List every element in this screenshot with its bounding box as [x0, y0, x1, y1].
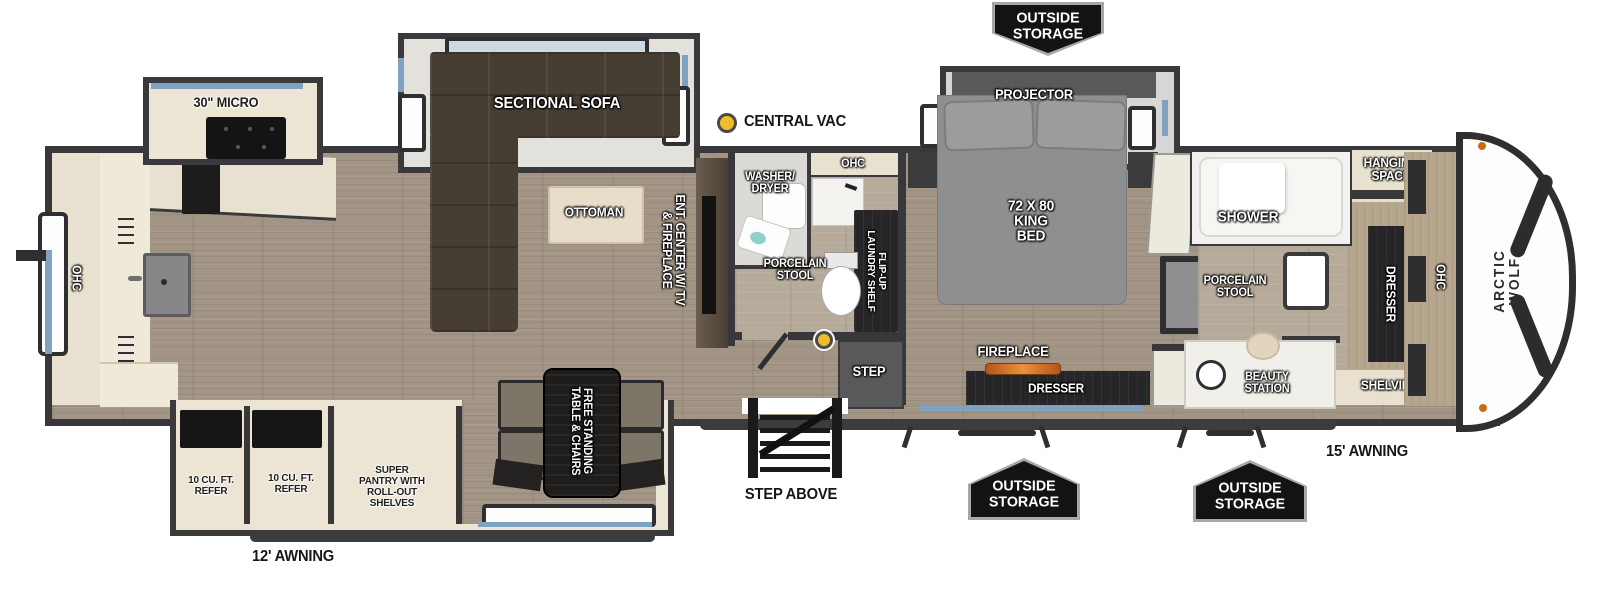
nightstand-left — [908, 152, 938, 188]
fireplace-flame — [985, 363, 1061, 375]
pantry-label: SUPER PANTRY WITH ROLL-OUT SHELVES — [359, 465, 425, 509]
front-dresser-label: DRESSER — [1384, 266, 1397, 322]
ent-center-label: ENT. CENTER W/ TV & FIREPLACE — [660, 195, 686, 306]
laundry-shelf-label: FLIP-UP LAUNDRY SHELF — [865, 230, 887, 311]
bottom-wall-window-band — [920, 406, 1142, 411]
awning-rear-bar — [250, 532, 655, 542]
marker-light-top — [1478, 142, 1486, 150]
entry-steps-left-rail — [748, 398, 758, 478]
rear-wall-window-band — [45, 250, 52, 354]
washer-dryer-label: WASHER/ DRYER — [745, 172, 795, 196]
beauty-sink — [1196, 360, 1226, 390]
refer-2-label: 10 CU. FT. REFER — [268, 473, 314, 495]
step-above-label: STEP ABOVE — [745, 487, 837, 503]
shower-label: SHOWER — [1218, 210, 1279, 225]
rear-window — [38, 212, 68, 356]
central-vac-label: CENTRAL VAC — [744, 114, 846, 130]
chair-top-left — [498, 380, 548, 430]
beauty-station-label: BEAUTY STATION — [1244, 372, 1289, 396]
marker-light-bottom — [1479, 404, 1487, 412]
bedroom-dresser-label: DRESSER — [1028, 383, 1084, 396]
awning-arm-1 — [958, 430, 1036, 436]
mid-bath-ohc-label: OHC — [841, 159, 865, 171]
micro-label: 30" MICRO — [194, 96, 259, 110]
mid-toilet-bowl — [821, 266, 861, 316]
kitchen-sink — [143, 253, 191, 317]
slide-divider-1 — [244, 406, 250, 524]
drawer-pulls-upper — [118, 218, 134, 244]
front-ohc-shelf-1 — [1408, 160, 1426, 214]
bath-left-wall — [728, 150, 735, 346]
cooktop — [206, 117, 286, 159]
pillow-left — [943, 98, 1035, 151]
sofa-slide-right-band — [682, 55, 688, 89]
tv — [702, 196, 716, 314]
sofa-slide-left-band — [398, 58, 404, 92]
refer-2-top — [252, 410, 322, 448]
rear-bumper-tick — [16, 250, 46, 261]
projector-label: PROJECTOR — [995, 88, 1073, 102]
outside-storage-badge-door: OUTSIDE STORAGE — [968, 458, 1080, 520]
sofa-label: SECTIONAL SOFA — [494, 96, 620, 112]
kitchen-sink-drain — [161, 279, 167, 285]
refer-1-top — [180, 410, 242, 448]
front-ohc-shelf-2 — [1408, 256, 1426, 302]
rear-bottom-counter — [100, 362, 178, 407]
beauty-stool — [1246, 332, 1280, 360]
step-label: STEP — [853, 365, 886, 379]
partition-upper — [1149, 155, 1196, 253]
outside-storage-top-label: OUTSIDE STORAGE — [1013, 10, 1083, 42]
sofa-slide-left-window — [398, 94, 426, 152]
sectional-sofa-chaise — [430, 136, 518, 332]
front-ohc-label: OHC — [1434, 264, 1447, 290]
awning-main-label: 15' AWNING — [1326, 444, 1408, 460]
kitchen-faucet — [128, 276, 142, 281]
front-toilet-label: PORCELAIN STOOL — [1204, 276, 1267, 300]
slide-divider-3 — [456, 406, 462, 524]
front-toilet — [1283, 252, 1329, 310]
outside-storage-badge-top: OUTSIDE STORAGE — [992, 2, 1104, 56]
drawer-pulls-lower — [118, 336, 134, 362]
awning-arm-2 — [1206, 430, 1254, 436]
pillow-right — [1035, 98, 1127, 151]
ottoman-label: OTTOMAN — [565, 207, 623, 220]
fireplace-label: FIREPLACE — [978, 345, 1049, 359]
dinette-window-band — [478, 522, 652, 527]
mid-toilet-label: PORCELAIN STOOL — [764, 259, 827, 283]
rear-ohc-label: OHC — [70, 265, 83, 291]
chair-top-right — [618, 380, 664, 430]
king-bed-label: 72 X 80 KING BED — [1008, 199, 1054, 244]
micro-slide-window-band — [151, 83, 303, 89]
range-oven — [182, 158, 220, 214]
floorplan-canvas: OHC 30" MICRO SECTIONAL SOFA OTTOMAN ENT… — [0, 0, 1600, 592]
slide-divider-2 — [328, 406, 334, 524]
outside-storage-door-label: OUTSIDE STORAGE — [989, 478, 1059, 510]
central-vac-unit-dot — [815, 331, 833, 349]
shower-seat — [1219, 163, 1285, 213]
outside-storage-front-label: OUTSIDE STORAGE — [1215, 480, 1285, 512]
central-vac-dot — [717, 113, 737, 133]
bed-slide-right-window — [1128, 106, 1156, 150]
awning-rear-label: 12' AWNING — [252, 549, 334, 565]
dinette-label: FREE STANDING TABLE & CHAIRS — [568, 387, 592, 476]
brand-label: ARCTIC WOLF — [1493, 237, 1523, 324]
outside-storage-badge-front: OUTSIDE STORAGE — [1193, 460, 1307, 522]
front-ohc-shelf-3 — [1408, 344, 1426, 396]
bed-slide-right-band — [1162, 100, 1168, 136]
refer-1-label: 10 CU. FT. REFER — [188, 475, 234, 497]
